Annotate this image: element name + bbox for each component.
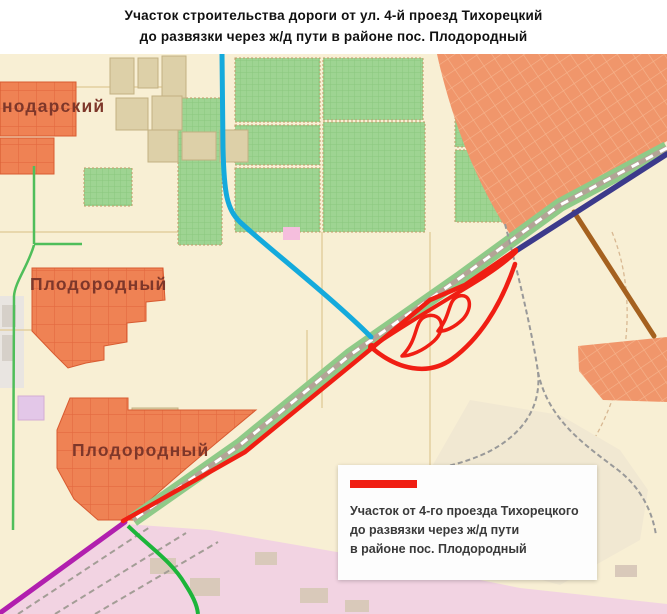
lavender-patch [18,396,44,420]
page-title-line1: Участок строительства дороги от ул. 4-й … [124,6,542,27]
legend-text-line1: Участок от 4-го проезда Тихорецкого [350,502,587,521]
legend-red-line-swatch [350,480,417,488]
legend-text-line2: до развязки через ж/д пути [350,521,587,540]
legend-text-line3: в районе пос. Плодородный [350,540,587,559]
title-band: Участок строительства дороги от ул. 4-й … [0,0,667,54]
pink-patch-small [283,227,300,240]
gray-blocks-left [0,296,24,388]
page-title-line2: до развязки через ж/д пути в районе пос.… [140,27,528,48]
legend-box: Участок от 4-го проезда Тихорецкого до р… [338,465,597,580]
map-label-plodorodny-2: Плодородный [72,440,209,461]
page: нодарский Плодородный Плодородный Участо… [0,0,667,614]
map-label-district: нодарский [2,96,105,117]
map-label-plodorodny-1: Плодородный [30,274,167,295]
